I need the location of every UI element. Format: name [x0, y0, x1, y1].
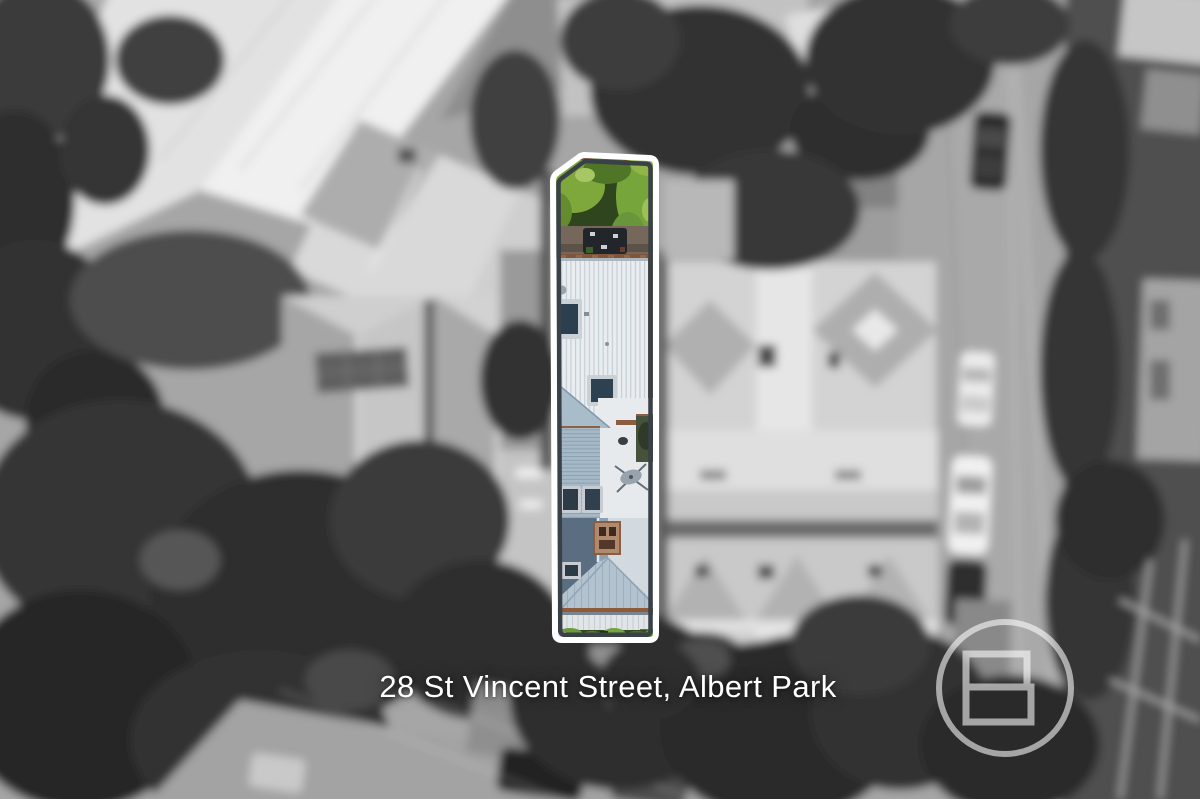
agency-logo-b-icon — [939, 622, 1071, 754]
parked-car-white-1 — [957, 351, 995, 427]
real-estate-aerial-photo: 28 St Vincent Street, Albert Park — [0, 0, 1200, 799]
brick-chimney — [594, 522, 620, 554]
parked-car-dark — [969, 111, 1011, 191]
solar-panels — [315, 347, 410, 393]
skylight-4 — [585, 489, 600, 510]
property-address-caption: 28 St Vincent Street, Albert Park — [379, 669, 836, 705]
lot-courtyard — [552, 226, 658, 260]
property-lot — [540, 148, 666, 645]
lot-mid-roofs — [552, 386, 658, 520]
parked-car-white-2 — [947, 455, 992, 555]
skylight-1 — [560, 304, 578, 334]
skylight-5 — [565, 565, 578, 576]
agency-logo-watermark — [931, 615, 1079, 763]
lot-hip-roof — [552, 518, 658, 616]
skylight-3 — [563, 489, 578, 510]
